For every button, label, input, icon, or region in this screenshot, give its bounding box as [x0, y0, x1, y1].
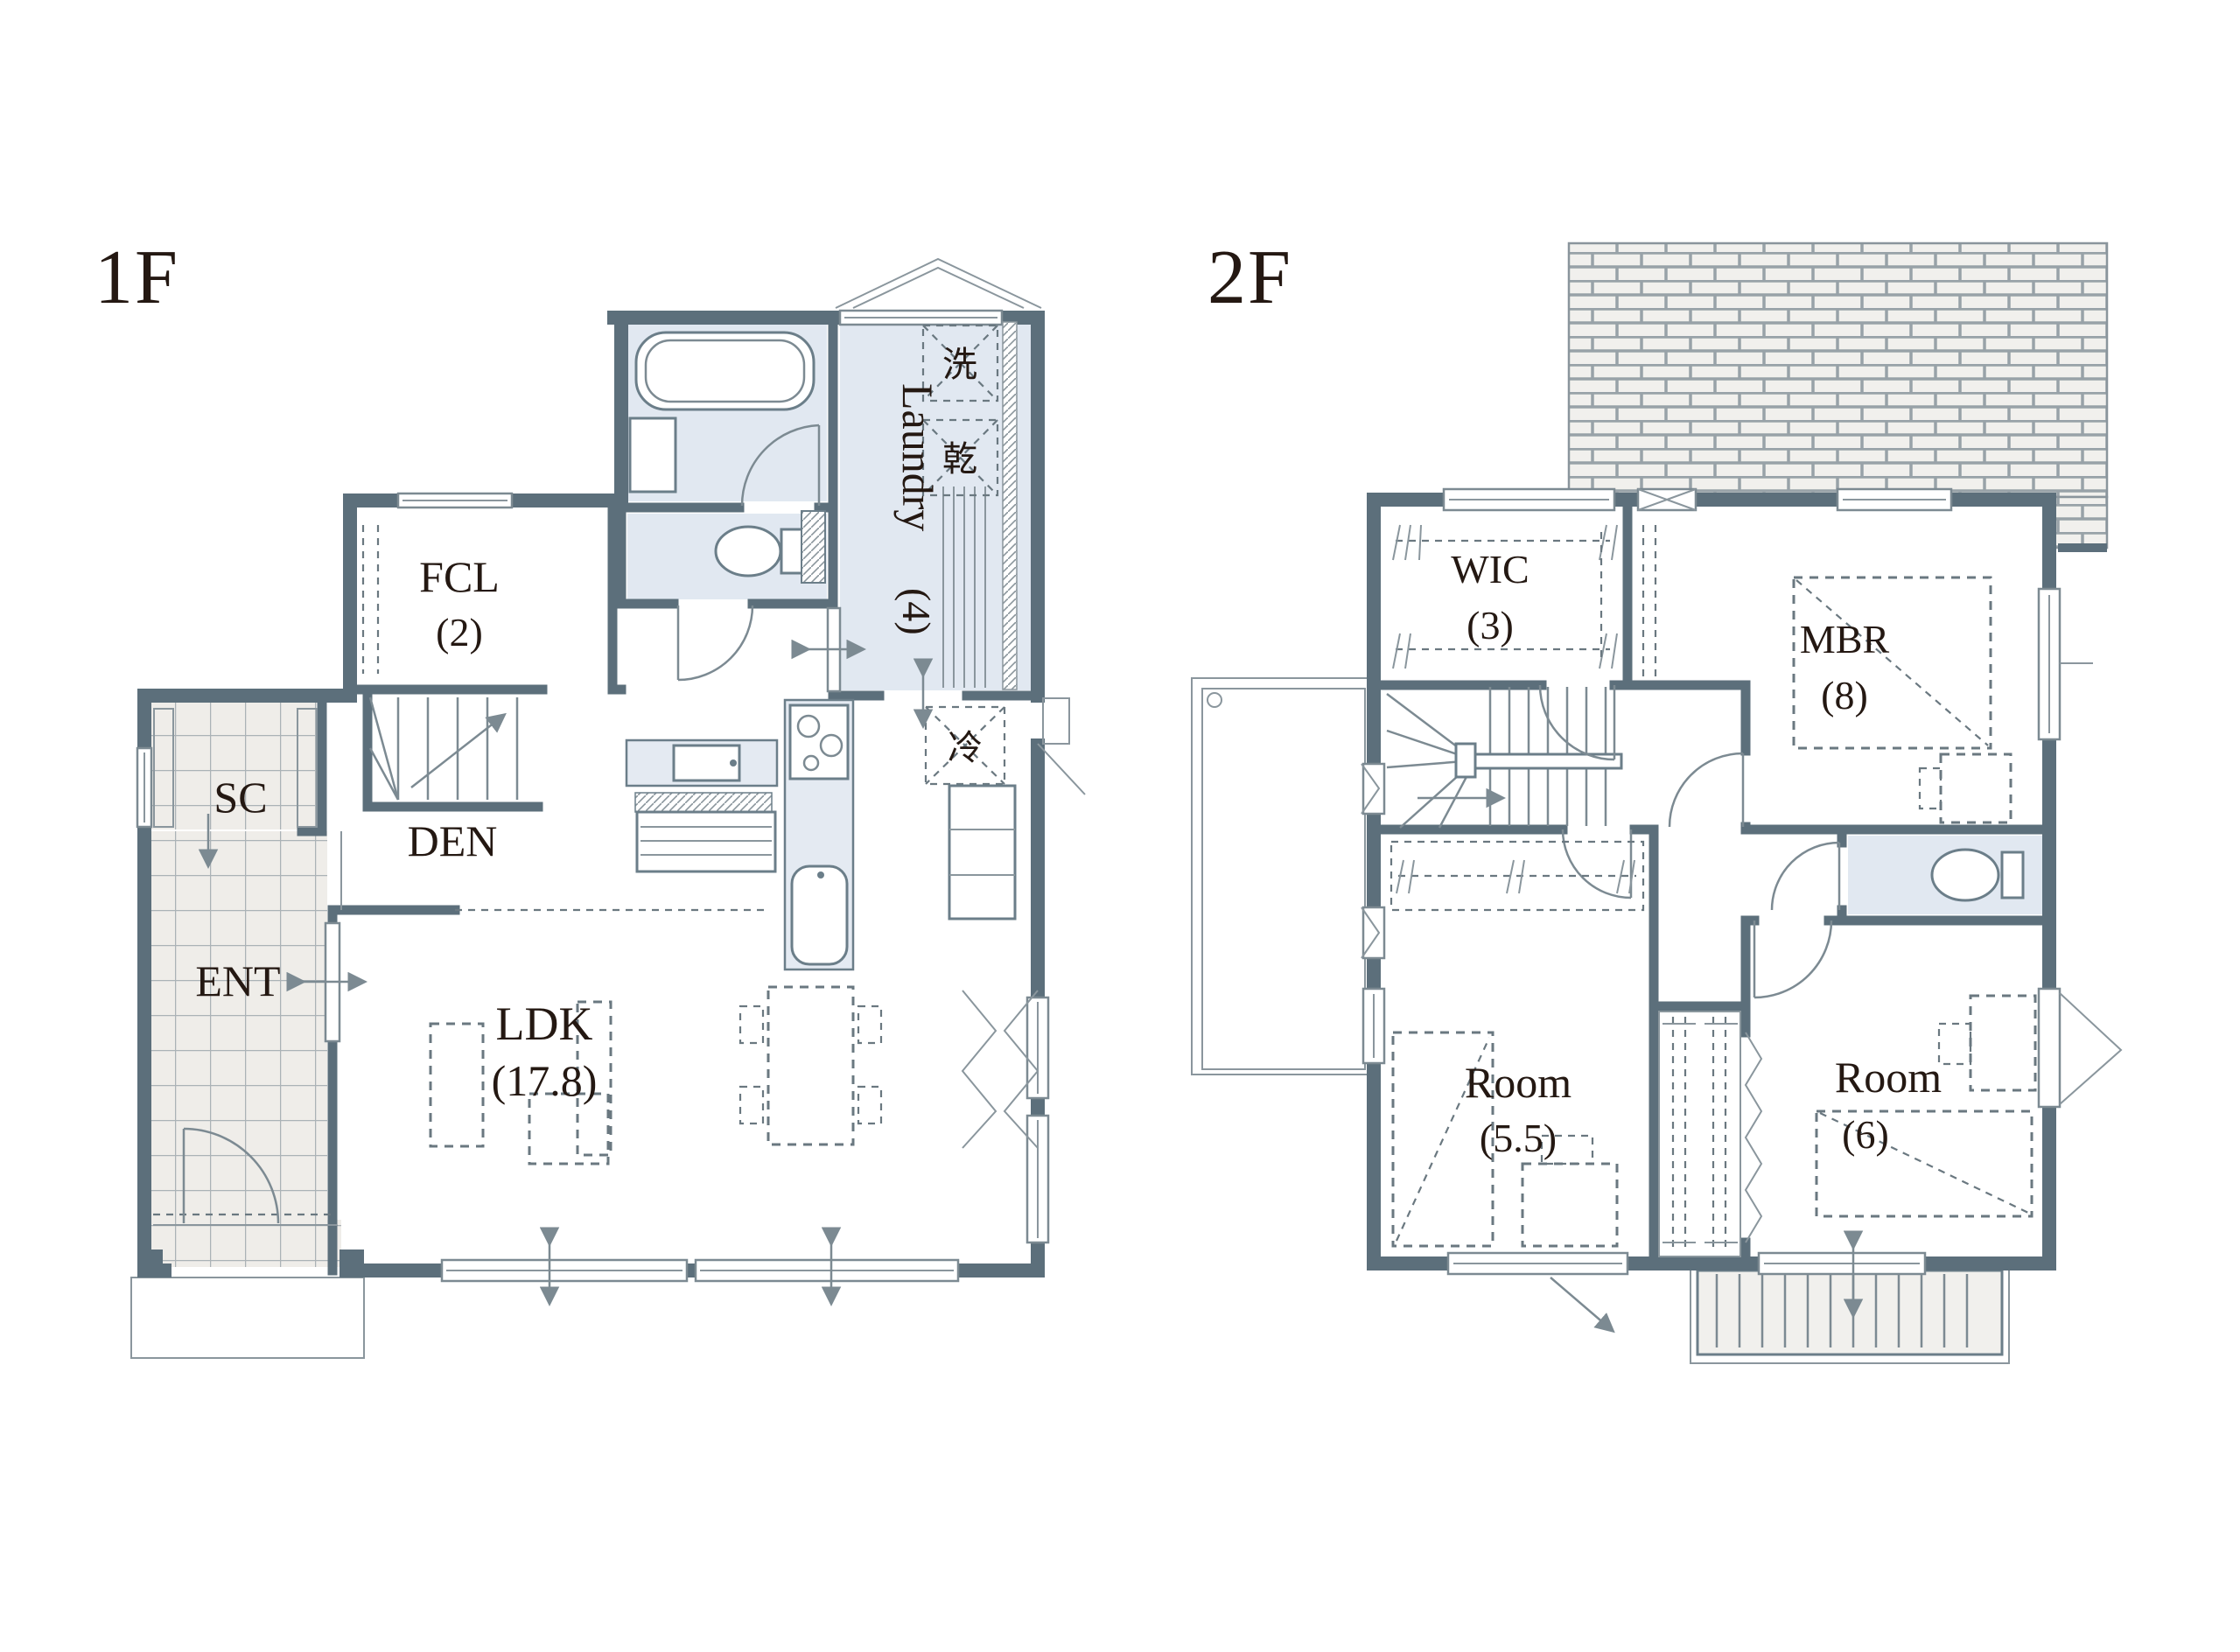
balcony-west: [1192, 678, 1371, 1074]
room-label-den: DEN: [408, 816, 498, 865]
room-label-ent: ENT: [195, 956, 280, 1005]
laundry-counter-hatch: [1003, 322, 1017, 689]
toilet-door-arc-2f: [1772, 843, 1839, 910]
room-label-wic: WIC: [1451, 547, 1529, 591]
room-size-fcl: (2): [436, 610, 483, 654]
stairs-1f: [370, 697, 517, 800]
room55-door-arc: [1563, 829, 1631, 898]
washer-symbol: 洗: [942, 345, 977, 385]
casement-mark: [2060, 993, 2121, 1104]
dining-table: [740, 987, 881, 1144]
floor-plan-svg: 1F: [0, 0, 2240, 1652]
pantry-cabinet: [949, 786, 1038, 1148]
wic-door-arc: [1540, 685, 1614, 759]
room-size-ldk: (17.8): [492, 1056, 598, 1105]
room-label-laundry: Laundry: [893, 383, 942, 531]
room-label-ldk: LDK: [496, 997, 593, 1050]
room-size-wic: (3): [1466, 603, 1514, 647]
sink-icon: [792, 866, 847, 964]
plan-2f: 2F: [1192, 235, 2121, 1363]
mbr-door-arc: [1669, 753, 1743, 827]
room-size-room6: (6): [1842, 1112, 1889, 1157]
mbr-bed: [1794, 577, 1991, 748]
room-label-fcl: FCL: [419, 552, 500, 601]
approach-step: [131, 1277, 364, 1358]
room-label-sc: SC: [213, 773, 267, 822]
porch-post: [138, 1249, 163, 1277]
kitchen-island: [626, 740, 777, 871]
room6-desk: [1970, 996, 2035, 1090]
window-arrow: [1550, 1277, 1612, 1330]
room55-closet: [1391, 842, 1643, 910]
fcl-shelf-dashed: [363, 525, 378, 674]
floor-plan-canvas: 1F: [0, 0, 2240, 1652]
dryer-symbol: 乾: [942, 439, 977, 479]
fridge-symbol: 冷: [948, 728, 983, 768]
back-door: [1038, 698, 1085, 794]
room-label-room6: Room: [1835, 1053, 1942, 1102]
mbr-side-table: [1941, 754, 2011, 822]
label-1f: 1F: [94, 235, 179, 320]
window-room6-east: [2039, 989, 2060, 1107]
stove-icon: [790, 705, 848, 779]
mbr-stool: [1920, 768, 1941, 808]
balcony-south: [1690, 1267, 2009, 1363]
room-divider-closet: [1659, 1011, 1740, 1256]
ent-floor: [150, 831, 327, 1220]
toilet-icon-2f: [1932, 850, 2023, 900]
room55-desk: [1522, 1164, 1617, 1246]
room6-chair: [1939, 1024, 1970, 1064]
gable-roof-line: [836, 259, 1041, 308]
room-size-room55: (5.5): [1480, 1116, 1557, 1160]
label-2f: 2F: [1207, 235, 1292, 320]
porch-post: [339, 1249, 364, 1277]
closet-folding-door: [1746, 1032, 1761, 1242]
toilet-door-arc-1f: [678, 605, 752, 680]
room6-door-arc: [1754, 920, 1831, 997]
room-size-laundry: (4): [894, 588, 939, 635]
mbr-closet-dashed: [1643, 525, 1655, 681]
room-label-mbr: MBR: [1800, 617, 1890, 661]
plan-1f: 1F: [94, 235, 1085, 1358]
stairs-2f: [1387, 687, 1621, 828]
window-mbr-fix: [1638, 489, 1696, 510]
kitchen-counter: [785, 700, 853, 969]
room-label-room55: Room: [1465, 1058, 1571, 1107]
porch-floor: [150, 1220, 341, 1267]
room-size-mbr: (8): [1821, 673, 1868, 717]
